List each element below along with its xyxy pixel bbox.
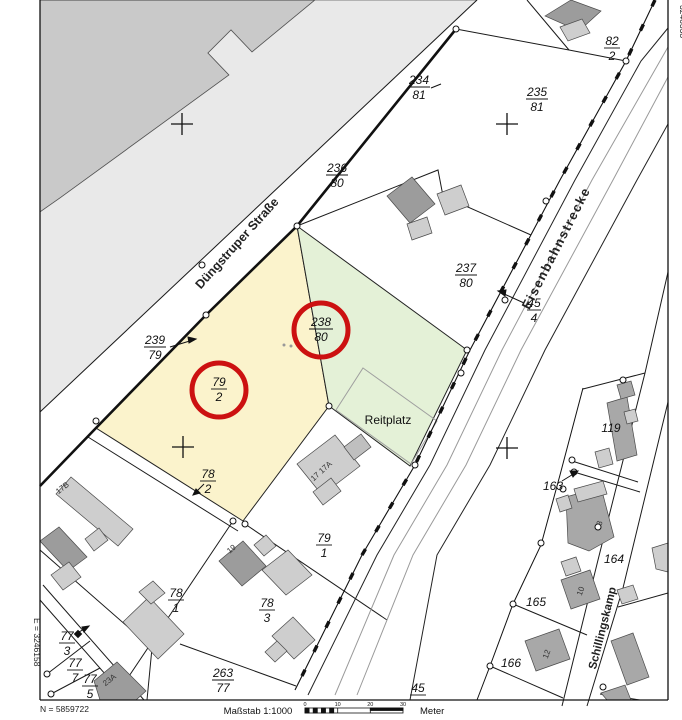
svg-text:78: 78 xyxy=(201,467,215,481)
boundary-165-166 xyxy=(490,666,563,698)
label-reitplatz: Reitplatz xyxy=(365,413,412,427)
building-east-street-2 xyxy=(617,585,638,604)
svg-text:7: 7 xyxy=(72,671,80,685)
building-119-small xyxy=(617,381,635,399)
grid-cross-4 xyxy=(496,437,518,459)
parcel-label-263-77: 263 77 xyxy=(212,666,234,695)
building-237-house xyxy=(387,177,435,223)
svg-text:77: 77 xyxy=(68,656,83,670)
parcel-label-163: 163 xyxy=(543,479,563,493)
parcel-label-79-1: 79 1 xyxy=(316,531,332,560)
svg-text:5: 5 xyxy=(87,687,94,701)
coordinate-label-east-left: E = 3246158 xyxy=(32,618,42,667)
svg-text:2: 2 xyxy=(215,390,223,404)
parcel-label-77-3: 77 3 xyxy=(59,629,75,658)
scale-tick-20: 20 xyxy=(367,702,373,708)
svg-text:4: 4 xyxy=(531,311,538,325)
svg-text:79: 79 xyxy=(317,531,331,545)
svg-text:45: 45 xyxy=(411,681,425,695)
svg-text:236: 236 xyxy=(326,161,347,175)
building-east-edge xyxy=(652,543,668,572)
svg-text:3: 3 xyxy=(264,611,271,625)
svg-text:80: 80 xyxy=(314,330,328,344)
svg-text:1: 1 xyxy=(173,601,180,615)
building-west-dark xyxy=(40,527,87,571)
svg-text:79: 79 xyxy=(148,348,162,362)
cadastral-map-page: 234 81 235 81 82 2 236 80 237 80 238 80 xyxy=(0,0,682,720)
svg-text:238: 238 xyxy=(310,315,331,329)
building-10-annex xyxy=(561,557,581,576)
parcel-label-165: 165 xyxy=(526,595,546,609)
svg-text:234: 234 xyxy=(408,73,429,87)
svg-text:82: 82 xyxy=(605,34,619,48)
building-edge-small xyxy=(624,409,638,424)
building-west-annex xyxy=(51,562,81,590)
scale-tick-0: 0 xyxy=(303,702,306,708)
parcel-label-77-7: 77 7 xyxy=(67,656,83,685)
building-east-street-1 xyxy=(611,633,649,685)
svg-text:78: 78 xyxy=(260,596,274,610)
building-19-annex xyxy=(262,550,312,595)
parcel-238-80-shape xyxy=(297,226,467,466)
svg-text:80: 80 xyxy=(330,176,344,190)
scale-bar: Maßstab 1:1000 0 10 20 30 Meter xyxy=(224,702,445,717)
boundary-235-north xyxy=(456,29,626,61)
map-dot-2 xyxy=(290,345,293,348)
svg-text:263: 263 xyxy=(212,666,233,680)
parcel-label-235-81: 235 81 xyxy=(526,85,548,114)
parcel-label-237-80: 237 80 xyxy=(455,261,477,290)
scale-tick-30: 30 xyxy=(400,702,406,708)
coordinate-label-north: N = 5859722 xyxy=(40,704,89,714)
svg-text:2: 2 xyxy=(204,482,212,496)
parcel-label-78-3: 78 3 xyxy=(259,596,275,625)
scale-bar-graphic xyxy=(305,708,403,713)
svg-text:77: 77 xyxy=(83,672,98,686)
building-19-small xyxy=(254,535,276,556)
parcel-label-119: 119 xyxy=(601,421,620,435)
svg-text:80: 80 xyxy=(459,276,473,290)
parcel-label-164: 164 xyxy=(604,552,624,566)
boundary-119-north xyxy=(583,373,645,389)
svg-text:237: 237 xyxy=(455,261,477,275)
svg-text:79: 79 xyxy=(212,375,226,389)
scale-unit: Meter xyxy=(420,706,444,717)
svg-text:235: 235 xyxy=(526,85,547,99)
grid-cross-2 xyxy=(496,113,518,135)
scale-label: Maßstab 1:1000 xyxy=(224,706,293,717)
svg-text:81: 81 xyxy=(530,100,543,114)
map-canvas: 234 81 235 81 82 2 236 80 237 80 238 80 xyxy=(0,0,682,720)
svg-text:77: 77 xyxy=(216,681,231,695)
svg-text:1: 1 xyxy=(321,546,328,560)
boundary-164-165 xyxy=(513,604,587,635)
parcel-label-234-81: 234 81 xyxy=(408,73,430,102)
coordinate-label-east-right: 3246338 xyxy=(678,5,682,38)
parcel-label-45: 45 xyxy=(410,681,426,695)
svg-text:239: 239 xyxy=(144,333,165,347)
svg-text:2: 2 xyxy=(608,49,616,63)
street-name-eisenbahnstrecke: Eisenbahnstrecke xyxy=(519,184,594,311)
scale-tick-10: 10 xyxy=(335,702,341,708)
parcel-label-166: 166 xyxy=(501,656,521,670)
svg-text:81: 81 xyxy=(412,88,425,102)
parcel-label-78-1: 78 1 xyxy=(168,586,184,615)
building-119-annex xyxy=(595,448,613,468)
svg-text:78: 78 xyxy=(169,586,183,600)
parcel-label-82-2: 82 2 xyxy=(604,34,620,63)
building-sw-small xyxy=(139,581,165,604)
map-dot-1 xyxy=(283,344,286,347)
svg-text:77: 77 xyxy=(60,629,75,643)
